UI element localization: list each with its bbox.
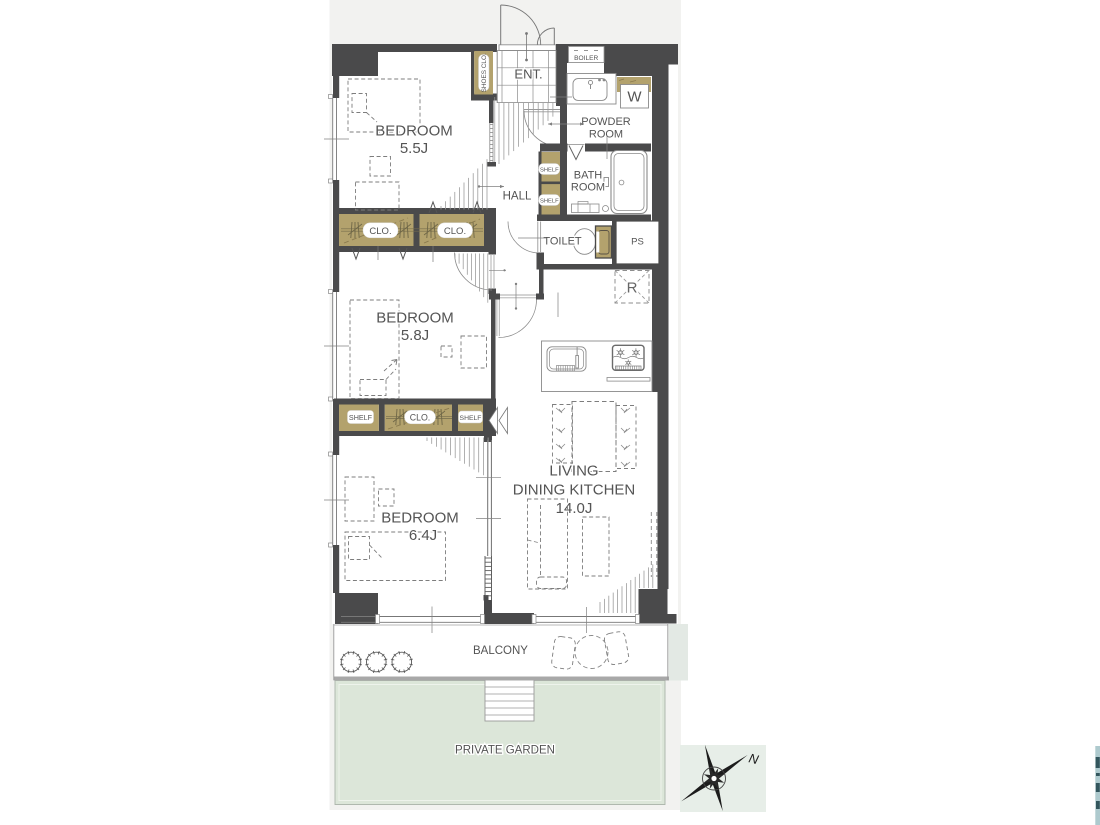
svg-text:ROOM: ROOM bbox=[589, 129, 623, 141]
svg-text:TOILET: TOILET bbox=[543, 236, 582, 248]
svg-text:6.4J: 6.4J bbox=[409, 527, 437, 544]
svg-text:BOILER: BOILER bbox=[574, 55, 598, 62]
svg-text:14.0J: 14.0J bbox=[556, 500, 593, 517]
svg-text:ROOM: ROOM bbox=[571, 182, 605, 194]
svg-text:SHELF: SHELF bbox=[540, 168, 559, 174]
svg-text:CLO.: CLO. bbox=[410, 412, 431, 422]
svg-text:ENT.: ENT. bbox=[514, 67, 542, 82]
svg-text:SHELF: SHELF bbox=[349, 413, 373, 422]
svg-text:R: R bbox=[627, 280, 638, 297]
svg-text:PRIVATE GARDEN: PRIVATE GARDEN bbox=[455, 745, 555, 757]
svg-text:POWDER: POWDER bbox=[581, 116, 631, 128]
svg-text:SHELF: SHELF bbox=[540, 199, 559, 205]
svg-text:BATH: BATH bbox=[574, 170, 603, 182]
svg-text:5.5J: 5.5J bbox=[400, 140, 428, 157]
svg-text:BEDROOM: BEDROOM bbox=[376, 310, 454, 327]
svg-text:CLO.: CLO. bbox=[444, 226, 466, 237]
svg-text:BEDROOM: BEDROOM bbox=[381, 510, 459, 527]
svg-text:HALL: HALL bbox=[503, 191, 532, 203]
svg-text:LIVING: LIVING bbox=[549, 463, 598, 480]
svg-text:SHELF: SHELF bbox=[460, 415, 482, 422]
svg-text:SHOES CLO.: SHOES CLO. bbox=[481, 53, 488, 92]
svg-text:DINING KITCHEN: DINING KITCHEN bbox=[513, 482, 636, 499]
svg-text:BEDROOM: BEDROOM bbox=[375, 123, 453, 140]
svg-text:CLO.: CLO. bbox=[369, 226, 391, 237]
svg-text:PS: PS bbox=[631, 237, 644, 248]
svg-text:BALCONY: BALCONY bbox=[473, 645, 528, 657]
svg-text:W: W bbox=[627, 89, 642, 106]
svg-text:5.8J: 5.8J bbox=[401, 327, 429, 344]
